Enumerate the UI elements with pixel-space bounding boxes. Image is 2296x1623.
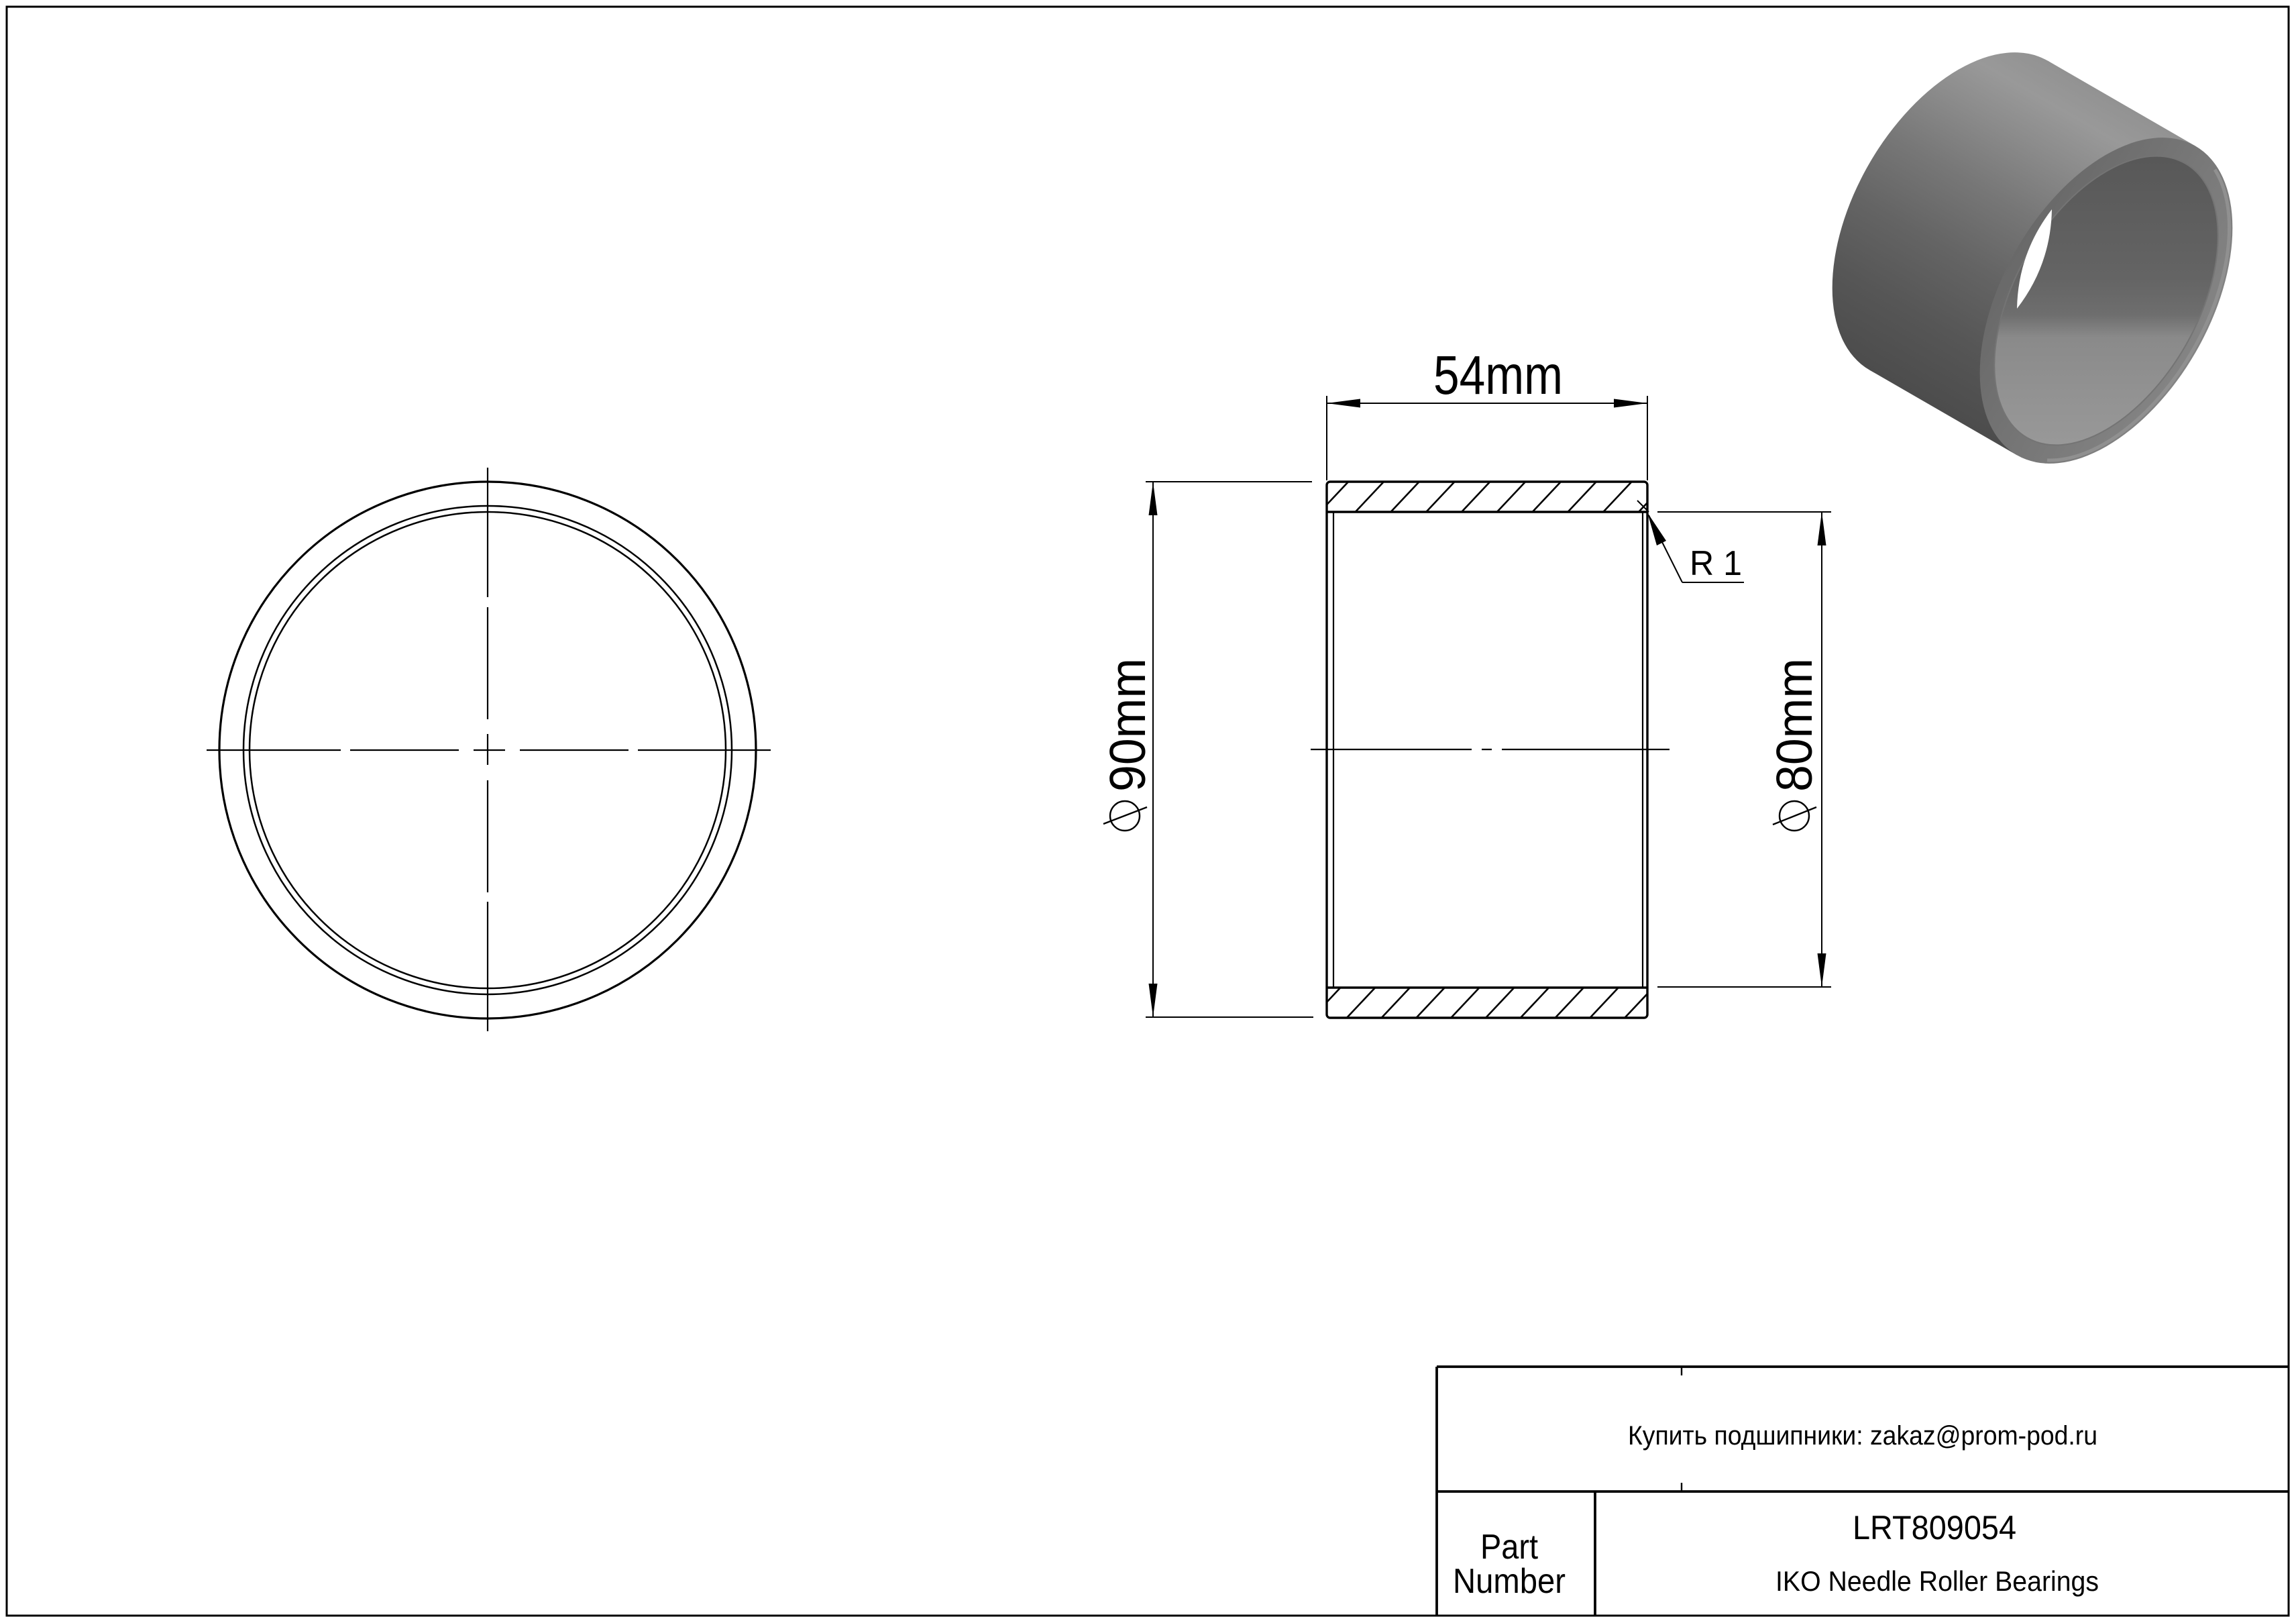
svg-text:R 1: R 1: [1690, 544, 1742, 583]
svg-text:IKO Needle Roller Bearings: IKO Needle Roller Bearings: [1775, 1565, 2099, 1597]
svg-text:54mm: 54mm: [1433, 345, 1563, 406]
svg-text:80mm: 80mm: [1766, 658, 1822, 792]
svg-text:Part: Part: [1480, 1528, 1538, 1567]
svg-text:Number: Number: [1453, 1562, 1566, 1601]
svg-text:LRT809054: LRT809054: [1853, 1509, 2016, 1547]
svg-text:Купить подшипники: zakaz@prom-: Купить подшипники: zakaz@prom-pod.ru: [1628, 1421, 2097, 1451]
svg-text:90mm: 90mm: [1099, 658, 1156, 792]
